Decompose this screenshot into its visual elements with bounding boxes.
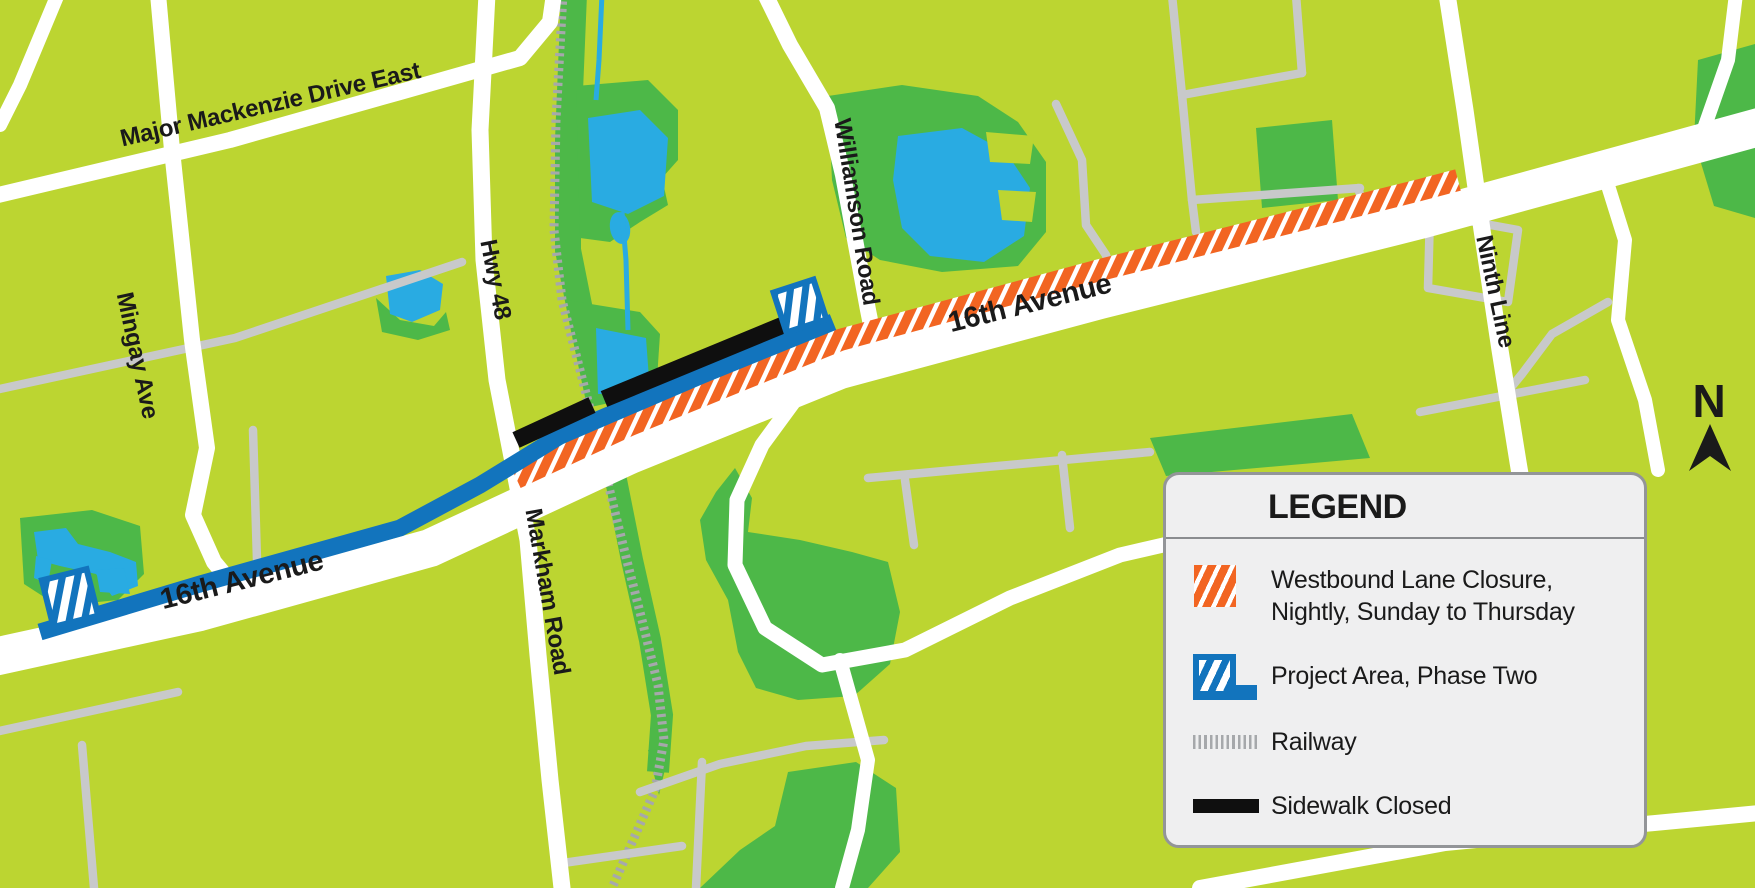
legend-item-label: Project Area, Phase Two <box>1271 661 1537 693</box>
minor-road <box>1296 0 1302 73</box>
railway-swatch-icon <box>1193 735 1257 749</box>
legend-item-label: Sidewalk Closed <box>1271 791 1451 823</box>
legend-title: LEGEND <box>1166 475 1644 537</box>
legend-label-line: Westbound Lane Closure, <box>1271 565 1575 597</box>
construction-notice-map: Major Mackenzie Drive East Mingay Ave Hw… <box>0 0 1755 888</box>
legend-item-label: Westbound Lane Closure, Nightly, Sunday … <box>1271 565 1575 628</box>
legend-label-line: Nightly, Sunday to Thursday <box>1271 597 1575 629</box>
pond-island <box>986 132 1034 164</box>
legend-items: Westbound Lane Closure, Nightly, Sunday … <box>1166 539 1644 822</box>
legend-item-railway: Railway <box>1193 727 1624 759</box>
legend-label-line: Railway <box>1271 727 1356 759</box>
legend-label-line: Sidewalk Closed <box>1271 791 1451 823</box>
pond <box>96 568 130 594</box>
westbound-closure-swatch-icon <box>1194 565 1236 607</box>
legend-panel: LEGEND Westbound Lane Closure, Nightly, … <box>1163 472 1647 848</box>
sidewalk-closed-swatch-icon <box>1193 799 1259 813</box>
project-area-marker-east <box>774 280 827 333</box>
minor-road <box>696 762 702 888</box>
legend-item-sidewalk-closed: Sidewalk Closed <box>1193 791 1624 823</box>
pond-island <box>998 190 1036 222</box>
legend-item-westbound-lane-closure: Westbound Lane Closure, Nightly, Sunday … <box>1193 565 1624 628</box>
minor-road <box>253 430 257 560</box>
project-area-swatch-icon <box>1193 654 1257 701</box>
project-area-marker-west <box>42 569 98 627</box>
legend-item-project-area: Project Area, Phase Two <box>1193 654 1624 701</box>
legend-label-line: Project Area, Phase Two <box>1271 661 1537 693</box>
legend-item-label: Railway <box>1271 727 1356 759</box>
north-label: N <box>1693 375 1726 427</box>
